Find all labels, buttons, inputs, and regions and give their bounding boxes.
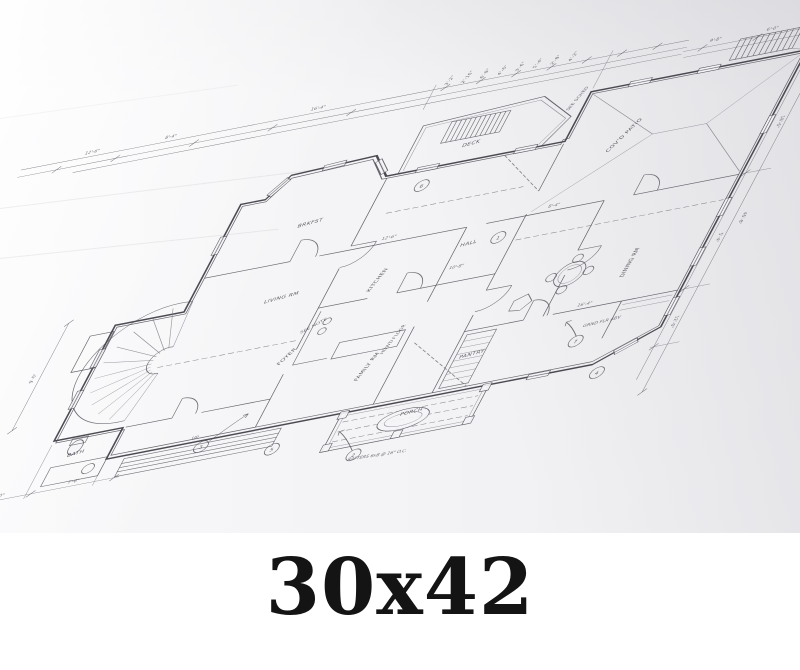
dim-label: 4'-6" (496, 65, 509, 75)
door-swings (172, 169, 669, 418)
room-label: FAMILY RM (353, 352, 381, 381)
note: GRND FLR ABV (582, 315, 623, 329)
ne-wing (531, 23, 800, 211)
product-image: 3'-2" 2'-10" 6'-8" 4'-6" 3'-6" 5'-4" 2'-… (0, 0, 800, 670)
curved-staircase (47, 300, 198, 436)
room-label: COV'D PATIO (605, 118, 644, 153)
dim-label: 5'-4" (713, 232, 724, 243)
kitchen-island (331, 330, 406, 359)
room-label: DINING RM (619, 247, 642, 278)
bubble-label: 4 (593, 371, 600, 377)
dim-label: 12'-6" (380, 234, 397, 242)
dim-label: 2'-10" (460, 70, 476, 83)
dim-label: 4'-2" (567, 51, 580, 61)
hot-tub (372, 403, 434, 434)
floorplan-drawing: 3'-2" 2'-10" 6'-8" 4'-6" 3'-6" 5'-4" 2'-… (0, 0, 800, 533)
table (548, 259, 591, 290)
bubble-label: 1 (495, 236, 501, 242)
room-label: KITCHEN (366, 268, 390, 292)
room-label: LIVING RM (263, 291, 300, 305)
dim-label: 9'-8" (708, 36, 722, 43)
room-label: DECK (461, 139, 481, 149)
reference-bubbles: 3 5 2 7 4 6 1 (169, 119, 737, 496)
bubble-label: 6 (418, 184, 425, 190)
dimension-lines-right: 18'-6" 5'-4" 12'-0" 46'-8" (623, 45, 800, 399)
porch (105, 383, 492, 495)
dim-label: 16'-4" (309, 105, 326, 113)
note: SEE NOTE (300, 317, 327, 335)
dim-label: 46'-8" (736, 211, 749, 225)
dimension-lines-left-bottom: 4'-0" 7'-6" 9'-0" 12'-6" 8'-4" 16'-4" 10… (0, 184, 655, 511)
note: RAFTERS 6x8 @ 16" O.C. (346, 448, 409, 462)
dim-label: 5'-4" (532, 58, 545, 68)
size-caption: 30x42 (0, 533, 800, 670)
room-label: HALL (459, 239, 478, 249)
room-label: FOYER (276, 348, 298, 367)
dim-label: 8'-4" (547, 202, 561, 209)
room-label: BRKFST (296, 218, 324, 230)
bubble-label: 7 (572, 339, 578, 345)
dim-label: 12'-6" (83, 148, 100, 156)
planter (508, 292, 536, 312)
blueprint-photo: 3'-2" 2'-10" 6'-8" 4'-6" 3'-6" 5'-4" 2'-… (0, 0, 800, 533)
pantry-shelves (439, 329, 497, 388)
bubble-label: 5 (268, 448, 274, 454)
deck (398, 88, 586, 174)
dim-label: 10'-8" (447, 263, 464, 271)
size-label: 30x42 (266, 542, 535, 633)
